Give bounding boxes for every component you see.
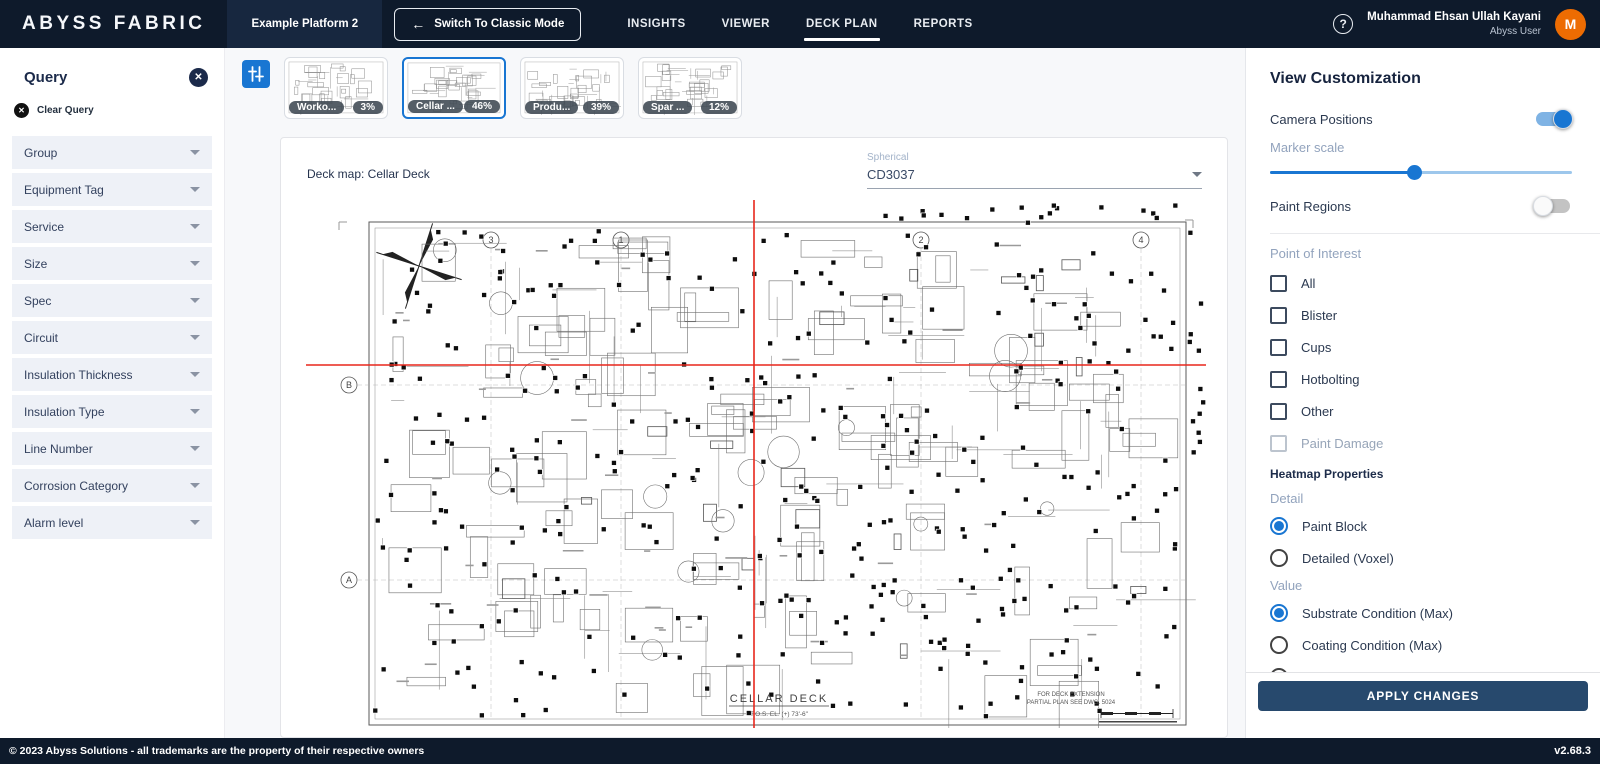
- avatar[interactable]: M: [1555, 9, 1586, 40]
- marker-scale-slider[interactable]: [1270, 165, 1576, 179]
- clear-icon: ✕: [14, 103, 29, 118]
- deck-thumbnail-1[interactable]: Cellar ...46%: [402, 57, 506, 119]
- marker-scale-label: Marker scale: [1270, 140, 1576, 155]
- deck-thumbnail-row: Worko...3%Cellar ...46%Produ...39%Spar .…: [225, 48, 1245, 124]
- help-icon[interactable]: ?: [1333, 14, 1353, 34]
- value-radio-label: Coating Condition (Max): [1302, 638, 1442, 653]
- clear-query-label: Clear Query: [37, 105, 94, 116]
- query-filter-label: Alarm level: [24, 516, 83, 530]
- query-filter-size[interactable]: Size: [12, 247, 212, 280]
- poi-checkbox-all[interactable]: All: [1270, 267, 1576, 299]
- detail-radio-paint-block[interactable]: Paint Block: [1270, 510, 1576, 542]
- query-filter-service[interactable]: Service: [12, 210, 212, 243]
- deck-map-drawing[interactable]: 3124 BA CELLAR DECK T.O.S. EL. (+) 73'-6…: [301, 200, 1211, 728]
- poi-checkbox-label: Paint Damage: [1301, 436, 1383, 451]
- checkbox-icon: [1270, 307, 1287, 324]
- query-panel-title: Query: [24, 69, 67, 86]
- app: ABYSS FABRIC Example Platform 2 ← Switch…: [0, 0, 1600, 764]
- deck-map-title: Deck map: Cellar Deck: [307, 167, 430, 181]
- query-filter-corrosion-category[interactable]: Corrosion Category: [12, 469, 212, 502]
- point-of-interest-label: Point of Interest: [1270, 246, 1576, 261]
- content: Query ✕ ✕ Clear Query GroupEquipment Tag…: [0, 48, 1600, 738]
- chevron-down-icon: [190, 150, 200, 155]
- main-area: Worko...3%Cellar ...46%Produ...39%Spar .…: [225, 48, 1245, 738]
- deck-thumbnail-3[interactable]: Spar ...12%: [638, 57, 742, 119]
- radio-icon: [1270, 549, 1288, 567]
- chevron-down-icon: [190, 261, 200, 266]
- query-filter-label: Corrosion Category: [24, 479, 128, 493]
- poi-checkbox-blister[interactable]: Blister: [1270, 299, 1576, 331]
- poi-checkbox-label: All: [1301, 276, 1315, 291]
- poi-checkbox-paint-damage: Paint Damage: [1270, 427, 1576, 459]
- query-filter-label: Line Number: [24, 442, 93, 456]
- heatmap-properties-title: Heatmap Properties: [1270, 467, 1576, 481]
- query-filter-label: Service: [24, 220, 64, 234]
- chevron-down-icon: [190, 298, 200, 303]
- nav-tab-deck-plan[interactable]: DECK PLAN: [806, 0, 878, 48]
- value-radio-coating-condition-max-[interactable]: Coating Condition (Max): [1270, 629, 1576, 661]
- extension-note-2: PARTIAL PLAN SEE DWG. 5024: [1027, 700, 1116, 706]
- filter-settings-button[interactable]: [242, 60, 270, 88]
- query-filter-accordion: GroupEquipment TagServiceSizeSpecCircuit…: [12, 136, 212, 539]
- camera-positions-toggle[interactable]: [1536, 112, 1570, 126]
- poi-checkbox-label: Cups: [1301, 340, 1331, 355]
- chevron-down-icon: [190, 409, 200, 414]
- deck-thumbnail-percent: 46%: [464, 100, 500, 113]
- deck-thumbnail-percent: 39%: [583, 101, 619, 114]
- app-logo: ABYSS FABRIC: [0, 13, 227, 35]
- deck-plan-svg: 3124 BA CELLAR DECK T.O.S. EL. (+) 73'-6…: [301, 200, 1211, 728]
- apply-changes-button[interactable]: APPLY CHANGES: [1258, 681, 1588, 711]
- chevron-down-icon: [190, 520, 200, 525]
- chevron-down-icon: [190, 446, 200, 451]
- query-filter-label: Circuit: [24, 331, 58, 345]
- value-label: Value: [1270, 578, 1576, 593]
- user-block: Muhammad Ehsan Ullah Kayani Abyss User: [1367, 10, 1541, 38]
- spherical-select-label: Spherical: [867, 152, 1202, 163]
- copyright-text: © 2023 Abyss Solutions - all trademarks …: [9, 745, 424, 757]
- value-radio-substrate-condition-max-[interactable]: Substrate Condition (Max): [1270, 597, 1576, 629]
- deck-thumbnail-percent: 12%: [701, 101, 737, 114]
- user-role: Abyss User: [1367, 25, 1541, 38]
- divider: [1270, 233, 1600, 234]
- query-filter-circuit[interactable]: Circuit: [12, 321, 212, 354]
- deck-thumbnail-label: Produ...: [525, 101, 578, 114]
- radio-icon: [1270, 517, 1288, 535]
- query-filter-spec[interactable]: Spec: [12, 284, 212, 317]
- nav-tab-viewer[interactable]: VIEWER: [722, 0, 770, 48]
- checkbox-icon: [1270, 339, 1287, 356]
- topbar-right: ? Muhammad Ehsan Ullah Kayani Abyss User…: [1333, 9, 1600, 40]
- svg-text:2: 2: [918, 235, 923, 245]
- query-panel: Query ✕ ✕ Clear Query GroupEquipment Tag…: [0, 48, 225, 738]
- spherical-select[interactable]: Spherical CD3037: [867, 152, 1202, 189]
- checkbox-icon: [1270, 275, 1287, 292]
- spherical-select-value: CD3037: [867, 167, 915, 182]
- version-text: v2.68.3: [1554, 745, 1591, 757]
- deck-thumbnail-2[interactable]: Produ...39%: [520, 57, 624, 119]
- user-name: Muhammad Ehsan Ullah Kayani: [1367, 10, 1541, 25]
- svg-text:B: B: [346, 380, 352, 390]
- query-filter-equipment-tag[interactable]: Equipment Tag: [12, 173, 212, 206]
- close-icon[interactable]: ✕: [189, 68, 208, 87]
- query-filter-insulation-type[interactable]: Insulation Type: [12, 395, 212, 428]
- svg-text:4: 4: [1138, 235, 1143, 245]
- detail-label: Detail: [1270, 491, 1576, 506]
- query-filter-insulation-thickness[interactable]: Insulation Thickness: [12, 358, 212, 391]
- detail-radio-label: Detailed (Voxel): [1302, 551, 1394, 566]
- query-filter-alarm-level[interactable]: Alarm level: [12, 506, 212, 539]
- view-panel-footer: APPLY CHANGES: [1246, 672, 1600, 738]
- query-filter-label: Insulation Thickness: [24, 368, 133, 382]
- query-filter-label: Group: [24, 146, 57, 160]
- paint-regions-toggle[interactable]: [1536, 199, 1570, 213]
- query-filter-label: Spec: [24, 294, 51, 308]
- camera-positions-label: Camera Positions: [1270, 112, 1373, 127]
- deck-thumbnail-label: Worko...: [289, 101, 344, 114]
- paint-regions-label: Paint Regions: [1270, 199, 1351, 214]
- switch-to-classic-mode-button[interactable]: ← Switch To Classic Mode: [394, 8, 581, 41]
- tune-icon: [247, 65, 265, 83]
- clear-query-button[interactable]: ✕ Clear Query: [14, 103, 212, 118]
- poi-checkbox-label: Other: [1301, 404, 1334, 419]
- detail-radio-detailed-voxel-[interactable]: Detailed (Voxel): [1270, 542, 1576, 574]
- marker-scale-knob[interactable]: [1407, 165, 1422, 180]
- platform-selector-button[interactable]: Example Platform 2: [227, 0, 382, 48]
- deck-map-card: Deck map: Cellar Deck Spherical CD3037: [280, 137, 1228, 738]
- svg-text:3: 3: [488, 235, 493, 245]
- drawing-title: CELLAR DECK: [730, 693, 828, 705]
- deck-thumbnail-percent: 3%: [353, 101, 383, 114]
- query-filter-group[interactable]: Group: [12, 136, 212, 169]
- poi-checkbox-other[interactable]: Other: [1270, 395, 1576, 427]
- poi-checkbox-label: Blister: [1301, 308, 1337, 323]
- detail-radio-label: Paint Block: [1302, 519, 1367, 534]
- checkbox-icon: [1270, 435, 1287, 452]
- chevron-down-icon: [190, 372, 200, 377]
- query-filter-label: Equipment Tag: [24, 183, 104, 197]
- marker-scale-fill: [1270, 171, 1414, 174]
- query-filter-label: Size: [24, 257, 47, 271]
- query-filter-line-number[interactable]: Line Number: [12, 432, 212, 465]
- chevron-down-icon: [190, 187, 200, 192]
- chevron-down-icon: [1192, 172, 1202, 177]
- poi-checkbox-cups[interactable]: Cups: [1270, 331, 1576, 363]
- extension-note-1: FOR DECK EXTENSION: [1037, 692, 1104, 698]
- checkbox-icon: [1270, 403, 1287, 420]
- checkbox-icon: [1270, 371, 1287, 388]
- svg-text:A: A: [346, 575, 352, 585]
- nav-tab-reports[interactable]: REPORTS: [914, 0, 973, 48]
- back-arrow-icon: ←: [411, 16, 425, 32]
- chevron-down-icon: [190, 224, 200, 229]
- query-filter-label: Insulation Type: [24, 405, 105, 419]
- poi-checkbox-label: Hotbolting: [1301, 372, 1360, 387]
- nav-tab-insights[interactable]: INSIGHTS: [627, 0, 685, 48]
- radio-icon: [1270, 636, 1288, 654]
- poi-checkbox-hotbolting[interactable]: Hotbolting: [1270, 363, 1576, 395]
- value-radio-label: Substrate Condition (Max): [1302, 606, 1453, 621]
- view-customization-title: View Customization: [1270, 70, 1576, 88]
- deck-thumbnail-0[interactable]: Worko...3%: [284, 57, 388, 119]
- deck-thumbnail-label: Spar ...: [643, 101, 692, 114]
- switch-button-label: Switch To Classic Mode: [434, 18, 564, 30]
- topbar: ABYSS FABRIC Example Platform 2 ← Switch…: [0, 0, 1600, 48]
- chevron-down-icon: [190, 335, 200, 340]
- footer: © 2023 Abyss Solutions - all trademarks …: [0, 738, 1600, 764]
- view-customization-panel: View Customization Camera Positions Mark…: [1245, 48, 1600, 738]
- drawing-elevation: T.O.S. EL. (+) 73'-6": [750, 711, 809, 718]
- deck-thumbnail-label: Cellar ...: [408, 100, 463, 113]
- chevron-down-icon: [190, 483, 200, 488]
- radio-icon: [1270, 604, 1288, 622]
